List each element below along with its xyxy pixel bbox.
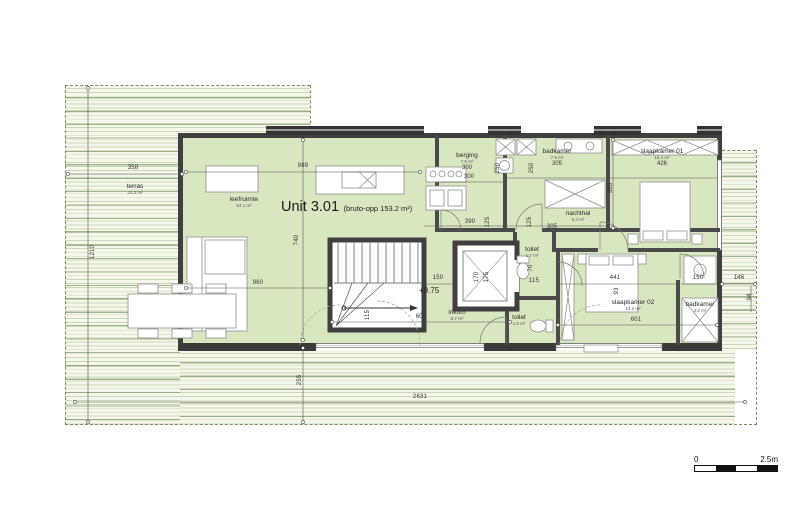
dimension-label: 358 [128, 165, 139, 171]
room-area: 6.7 m² [448, 316, 465, 321]
unit-title: Unit 3.01 (bruto-opp 153.2 m²) [281, 198, 412, 216]
dimension-label: 305 [547, 224, 558, 230]
dimension-label: 250 [529, 163, 535, 174]
dimension-label: 441 [610, 275, 621, 281]
room-area: 54.1 m² [230, 203, 259, 208]
dimension-label: 70 [528, 264, 534, 271]
unit-gross-area: (bruto-opp 153.2 m²) [344, 204, 413, 213]
room-label-inkom: inkom6.7 m² [448, 309, 465, 322]
dimension-label: 170 [474, 272, 480, 283]
room-label-slaapkamer-01: slaapkamer 0116.4 m²426 [641, 148, 684, 168]
dimension-label: 960 [253, 280, 264, 286]
dimension-label: 146 [734, 275, 745, 281]
dimension-label: 115 [365, 310, 371, 320]
room-label-toilet: toilet1.7 m² [525, 246, 539, 259]
room-label-terras: terras43.3 m² [127, 183, 144, 196]
room-name: toilet [525, 246, 539, 253]
room-label-slaapkamer-02: slaapkamer 0213.2 m² [612, 299, 655, 312]
dimension-label: 601 [631, 317, 642, 323]
dimension-label: 125 [485, 217, 491, 228]
room-name: inkom [448, 309, 465, 316]
dimension-label: 150 [693, 275, 704, 281]
room-name: badkamer [686, 301, 715, 308]
dimension-label: 255 [297, 375, 303, 386]
dimension-label: 989 [298, 163, 309, 169]
room-label-leefruimte: leefruimte54.1 m² [230, 196, 259, 209]
room-name: terras [127, 183, 144, 190]
room-label-badkamer: badkamer4.2 m² [686, 301, 715, 314]
room-name: slaapkamer 02 [612, 299, 655, 306]
dimension-label: 94 [747, 293, 753, 300]
dimension-label: 740 [294, 235, 300, 246]
dimension-label: 125 [527, 217, 533, 228]
dimension-label: 605 [416, 314, 427, 320]
room-name: badkamer [543, 148, 572, 155]
scale-max-label: 2.5m [760, 455, 778, 464]
dimension-label: 93 [614, 287, 620, 294]
room-label-berging: berging7.5 m²300 [456, 152, 478, 172]
scale-bar: 0 2.5m [694, 455, 778, 472]
dimension-label: 2631 [413, 394, 427, 400]
unit-number: Unit 3.01 [281, 199, 339, 215]
scale-strip [694, 465, 778, 472]
room-label-badkamer: badkamer7.6 m²305 [543, 148, 572, 168]
room-name: slaapkamer 01 [641, 148, 684, 155]
room-name: nachthal [566, 210, 591, 217]
room-area: 1.7 m² [525, 253, 539, 258]
room-area: 4.2 m² [686, 308, 715, 313]
room-area: 43.3 m² [127, 190, 144, 195]
dimension-label: 390 [465, 219, 476, 225]
room-name: berging [456, 152, 478, 159]
dimension-label: 300 [464, 174, 475, 180]
dimension-label: 175 [484, 272, 490, 283]
labels-layer: terras43.3 m²leefruimte54.1 m²berging7.5… [0, 0, 800, 523]
dimension-label: 385 [608, 183, 614, 194]
room-area: 1.5 m² [512, 321, 526, 326]
room-dimension: 305 [543, 161, 572, 168]
level-mark: +9.75 [419, 286, 439, 295]
scale-zero-label: 0 [694, 455, 698, 464]
dimension-label: 1210 [90, 245, 96, 259]
dimension-label: 150 [433, 275, 444, 281]
room-dimension: 300 [456, 165, 478, 172]
dimension-label: 115 [529, 278, 539, 284]
room-dimension: 426 [641, 161, 684, 168]
room-area: 5.3 m² [566, 217, 591, 222]
dimension-label: 250 [495, 163, 501, 174]
floor-plan-canvas: terras43.3 m²leefruimte54.1 m²berging7.5… [0, 0, 800, 523]
room-area: 13.2 m² [612, 306, 655, 311]
room-name: toilet [512, 314, 526, 321]
room-name: leefruimte [230, 196, 259, 203]
room-label-nachthal: nachthal5.3 m² [566, 210, 591, 223]
room-label-toilet: toilet1.5 m² [512, 314, 526, 327]
